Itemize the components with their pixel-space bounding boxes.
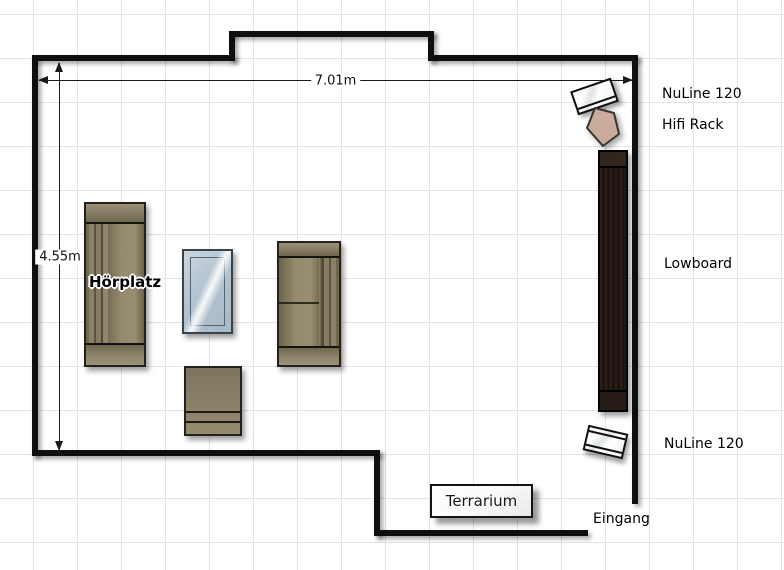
arrowhead-left-icon bbox=[38, 76, 48, 84]
wall-bottom[interactable] bbox=[374, 530, 588, 536]
lowboard-bottom-section bbox=[600, 390, 626, 410]
hifi-rack[interactable] bbox=[584, 106, 622, 148]
speaker-edge-line bbox=[589, 430, 626, 440]
sofa-cushion-seam bbox=[279, 302, 319, 304]
wall-bottom-step[interactable] bbox=[374, 450, 380, 536]
label-nuline-bottom[interactable]: NuLine 120 bbox=[664, 436, 744, 452]
sofa-seat bbox=[279, 258, 319, 346]
dimension-width[interactable]: 7.01m bbox=[39, 80, 632, 81]
wall-bump-top[interactable] bbox=[229, 31, 434, 37]
dimension-height[interactable]: 4.55m bbox=[59, 63, 60, 450]
wall-top-left[interactable] bbox=[32, 55, 235, 61]
glass-shine bbox=[184, 251, 231, 332]
dimension-height-label: 4.55m bbox=[35, 249, 85, 264]
sofa-armrest-bottom bbox=[86, 343, 144, 365]
sofa-armrest-top bbox=[86, 204, 144, 224]
glass-coffee-table[interactable] bbox=[182, 249, 233, 334]
sofa-right[interactable] bbox=[277, 241, 341, 367]
wall-top-right[interactable] bbox=[428, 55, 638, 61]
armchair-band bbox=[186, 411, 240, 413]
arrowhead-up-icon bbox=[55, 62, 63, 72]
speaker-nuline-bottom[interactable] bbox=[583, 425, 629, 460]
wall-bottom-left[interactable] bbox=[32, 450, 380, 456]
label-entrance[interactable]: Eingang bbox=[593, 511, 650, 527]
label-nuline-top[interactable]: NuLine 120 bbox=[662, 86, 742, 102]
hifi-rack-shape bbox=[587, 108, 619, 146]
arrowhead-down-icon bbox=[55, 441, 63, 451]
label-hifi-rack[interactable]: Hifi Rack bbox=[662, 117, 724, 133]
dimension-width-label: 7.01m bbox=[311, 74, 361, 89]
arrowhead-right-icon bbox=[623, 76, 633, 84]
sofa-backrest bbox=[319, 258, 339, 346]
sofa-armrest-bottom bbox=[279, 346, 339, 365]
terrarium-box[interactable]: Terrarium bbox=[430, 484, 533, 518]
wall-right[interactable] bbox=[632, 55, 638, 504]
lowboard[interactable] bbox=[598, 150, 628, 412]
speaker-edge-line bbox=[586, 444, 623, 454]
floor-plan-canvas: 7.01m 4.55m bbox=[0, 0, 784, 570]
armchair-band bbox=[186, 421, 240, 423]
armchair[interactable] bbox=[184, 366, 242, 436]
label-lowboard[interactable]: Lowboard bbox=[664, 256, 732, 272]
terrarium-label: Terrarium bbox=[446, 492, 518, 510]
sofa-armrest-top bbox=[279, 243, 339, 258]
lowboard-top-section bbox=[600, 152, 626, 168]
label-listening-position[interactable]: Hörplatz bbox=[89, 273, 161, 291]
